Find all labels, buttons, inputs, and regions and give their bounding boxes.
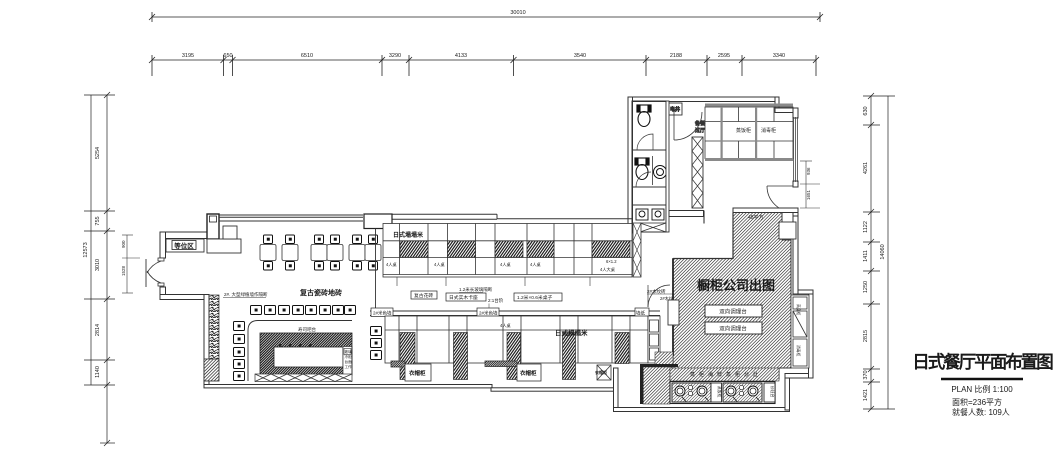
svg-text:4人桌: 4人桌 <box>530 261 542 268</box>
svg-text:650: 650 <box>223 53 232 59</box>
svg-text:日式榻榻米: 日式榻榻米 <box>555 328 588 337</box>
svg-text:1411: 1411 <box>863 250 869 262</box>
svg-text:日式塌塌米: 日式塌塌米 <box>393 231 423 239</box>
svg-text:炒灶台: 炒灶台 <box>770 386 775 398</box>
svg-text:6510: 6510 <box>301 53 313 59</box>
svg-text:755: 755 <box>95 216 101 225</box>
svg-text:3290: 3290 <box>389 53 401 59</box>
svg-text:1250: 1250 <box>863 281 869 293</box>
svg-text:冷柜: 冷柜 <box>345 354 353 359</box>
svg-text:45平方: 45平方 <box>748 214 764 221</box>
svg-text:备餐: 备餐 <box>695 120 705 127</box>
svg-text:3010: 3010 <box>95 259 101 271</box>
svg-text:4人大桌: 4人大桌 <box>600 266 616 273</box>
svg-text:2#米色墙: 2#米色墙 <box>479 310 498 317</box>
svg-text:5254: 5254 <box>95 147 101 159</box>
svg-text:蒸柜海鲜蒸柜炒灶: 蒸柜海鲜蒸柜炒灶 <box>690 371 762 378</box>
svg-text:高身柜: 高身柜 <box>796 304 801 316</box>
svg-text:消毒柜: 消毒柜 <box>796 345 801 357</box>
svg-text:消毒柜: 消毒柜 <box>761 127 776 134</box>
svg-text:台面: 台面 <box>345 359 353 364</box>
svg-text:4人桌: 4人桌 <box>434 261 446 268</box>
svg-text:3340: 3340 <box>773 53 785 59</box>
svg-text:3540: 3540 <box>574 53 586 59</box>
svg-text:蒸饭柜: 蒸饭柜 <box>736 127 751 134</box>
svg-text:2188: 2188 <box>670 53 682 59</box>
svg-text:1140: 1140 <box>95 366 101 378</box>
svg-text:橱柜公司出图: 橱柜公司出图 <box>697 278 775 293</box>
svg-text:蒸饭柜: 蒸饭柜 <box>717 386 722 398</box>
svg-text:衣帽柜: 衣帽柜 <box>595 369 607 375</box>
svg-text:PLAN 比例 1:100: PLAN 比例 1:100 <box>951 384 1013 394</box>
svg-text:复古花砖: 复古花砖 <box>414 292 433 299</box>
svg-text:等位区: 等位区 <box>173 241 194 250</box>
svg-text:900: 900 <box>121 240 126 248</box>
svg-text:2815: 2815 <box>863 330 869 342</box>
svg-text:1.2米长玻璃隔断: 1.2米长玻璃隔断 <box>459 286 493 293</box>
svg-text:2814: 2814 <box>95 324 101 336</box>
svg-text:双向调理台: 双向调理台 <box>719 325 747 333</box>
svg-text:30010: 30010 <box>510 10 525 16</box>
svg-text:2#米色墙: 2#米色墙 <box>373 310 392 317</box>
svg-text:衣帽柜: 衣帽柜 <box>409 369 426 377</box>
svg-text:2#. 大型绿植墙作隔断: 2#. 大型绿植墙作隔断 <box>224 291 268 298</box>
svg-text:墙纸: 墙纸 <box>636 310 645 317</box>
svg-text:复古瓷砖地砖: 复古瓷砖地砖 <box>299 288 342 297</box>
svg-text:双向调理台: 双向调理台 <box>719 308 747 316</box>
svg-text:630: 630 <box>863 106 869 115</box>
svg-text:936: 936 <box>806 167 811 175</box>
svg-text:1122: 1122 <box>863 221 869 233</box>
svg-text:2595: 2595 <box>718 53 730 59</box>
svg-text:2:1台阶: 2:1台阶 <box>488 297 504 304</box>
svg-text:6×1.2: 6×1.2 <box>606 259 617 264</box>
svg-text:3195: 3195 <box>182 53 194 59</box>
svg-text:1421: 1421 <box>863 389 869 401</box>
svg-text:12573: 12573 <box>83 242 89 257</box>
svg-text:面积=236平方: 面积=236平方 <box>952 397 1002 407</box>
svg-text:工作: 工作 <box>345 364 353 369</box>
svg-text:电井: 电井 <box>670 106 680 113</box>
svg-text:过厅: 过厅 <box>695 127 705 134</box>
svg-text:就餐人数: 109人: 就餐人数: 109人 <box>952 407 1010 417</box>
svg-text:4人桌: 4人桌 <box>500 322 512 329</box>
svg-text:14060: 14060 <box>880 244 886 259</box>
svg-text:日式实木卡座: 日式实木卡座 <box>449 294 478 301</box>
svg-text:1528: 1528 <box>121 265 126 276</box>
svg-text:4133: 4133 <box>455 53 467 59</box>
svg-text:4261: 4261 <box>863 162 869 174</box>
svg-text:衣帽柜: 衣帽柜 <box>520 369 537 377</box>
svg-text:1.2米×0.6米桌子: 1.2米×0.6米桌子 <box>517 294 553 301</box>
svg-text:4人桌: 4人桌 <box>386 261 398 268</box>
svg-text:日式餐厅平面布置图: 日式餐厅平面布置图 <box>912 352 1053 372</box>
svg-text:1651: 1651 <box>806 189 811 200</box>
svg-text:寿司吧台: 寿司吧台 <box>298 326 316 333</box>
svg-text:4人桌: 4人桌 <box>500 261 512 268</box>
svg-text:玻璃: 玻璃 <box>345 349 353 354</box>
svg-text:370: 370 <box>863 370 869 379</box>
